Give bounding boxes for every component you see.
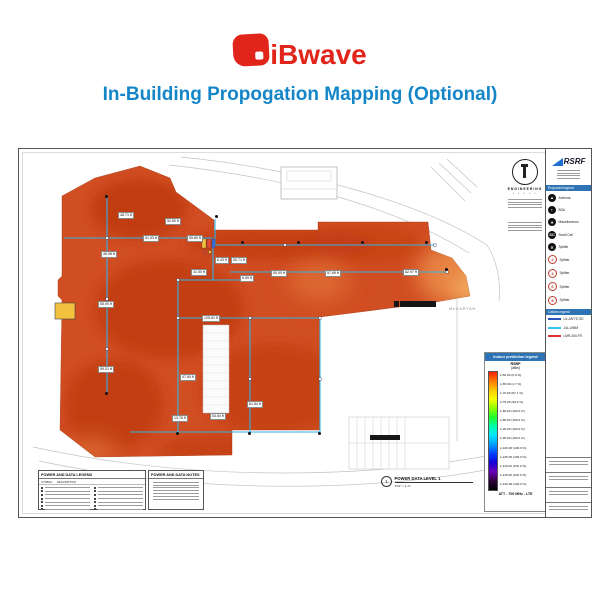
antenna-icon (105, 195, 108, 198)
prediction-threshold: ≥-65.00 (1.7 %) (500, 380, 526, 389)
rsrp-thresholds: ≥-60.00 (0.0 %)≥-65.00 (1.7 %)≥-70.00 (8… (500, 371, 526, 491)
titleblock-sidebar: RSRF Proposed legend ▲Antenna◗BDA✶Miscel… (545, 149, 591, 517)
antenna-icon (241, 241, 244, 244)
drawing-sheet: 48.71 ft52.80 ft51.53 ft55.80 ft46.98 ft… (18, 148, 592, 518)
antenna-icon (297, 241, 300, 244)
ibwave-logo-text: iBwave (270, 42, 367, 68)
symbol-mark (41, 501, 43, 503)
description-column-header: DESCRIPTION (57, 480, 76, 484)
symbol-mark (41, 494, 43, 496)
room-label-box-2 (370, 435, 400, 440)
legend-item-label: Small Cell (559, 233, 573, 237)
titleblock-cell (546, 502, 591, 517)
prediction-threshold: ≥-105.00 (100.0 %) (500, 453, 526, 462)
cable-row: J/A-10MM (546, 323, 591, 331)
text-line (508, 199, 542, 200)
callout-title: POWER DATA LEVEL 1 (395, 476, 473, 483)
legend-item: 2Splitter (546, 253, 591, 266)
bolt-body (523, 167, 526, 178)
legend-item-label: Antenna (559, 196, 571, 200)
text-line (549, 506, 588, 507)
prediction-threshold: ≥-115.00 (100.0 %) (500, 471, 526, 480)
symbol-mark (41, 505, 43, 507)
page: { "header": { "brand": "iBwave", "title"… (0, 0, 600, 600)
measurement-label: 59.01 ft (98, 366, 114, 373)
cable-label: LMR-400-FR (564, 334, 582, 338)
legend-item-label: Splitter (560, 298, 570, 302)
stamp-bolt-icon (512, 159, 538, 185)
rsrp-color-scale (488, 371, 498, 491)
measurement-label: 51.53 ft (143, 235, 159, 242)
prediction-legend-footer: ATT - 700 MHz - LTE (485, 492, 546, 496)
rsrf-logo: RSRF (546, 149, 591, 166)
miscellaneous-icon: ✶ (548, 218, 556, 226)
text-line (153, 487, 199, 488)
symbol-mark (41, 487, 43, 489)
splitter-6-icon: 6 (548, 282, 557, 291)
cable-color-swatch (548, 335, 561, 337)
text-line (98, 491, 144, 492)
measurement-label: 55.50 ft (271, 270, 287, 277)
legend-item: 8Splitter (546, 293, 591, 306)
cable-color-swatch (548, 318, 561, 320)
prediction-threshold: ≥-120.00 (100.0 %) (500, 480, 526, 489)
prediction-threshold: ≥-85.00 (100.0 %) (500, 416, 526, 425)
legend-item-label: BDA (559, 208, 566, 212)
antenna-icon (318, 432, 321, 435)
text-line (549, 476, 588, 477)
prediction-threshold: ≥-110.00 (100.0 %) (500, 462, 526, 471)
text-line (549, 461, 588, 462)
symbol-mark (94, 508, 96, 510)
text-line (45, 502, 91, 503)
drawing-callout: 1 POWER DATA LEVEL 1 3/32" = 1'-0" (381, 476, 473, 488)
prediction-threshold: ≥-100.00 (100.0 %) (500, 444, 526, 453)
power-data-notes-box: POWER AND DATA NOTES (148, 470, 204, 510)
antenna-icon: ▲ (548, 194, 556, 202)
callout-scale: 3/32" = 1'-0" (395, 484, 473, 488)
splitter-2-icon: 2 (548, 255, 557, 264)
legend-item: ✶Miscellaneous (546, 216, 591, 228)
prediction-threshold: ≥-95.00 (100.0 %) (500, 434, 526, 443)
text-line (508, 230, 542, 231)
text-line (45, 491, 91, 492)
prediction-threshold: ≥-75.00 (99.9 %) (500, 398, 526, 407)
text-line (508, 207, 542, 208)
symbol-mark (41, 498, 43, 500)
text-line (98, 509, 144, 510)
legend-item-label: Miscellaneous (559, 220, 579, 224)
text-line (98, 505, 144, 506)
measurement-label: 57.89 ft (325, 270, 341, 277)
splitter-icon: ✕ (548, 243, 556, 251)
callout-number: 1 (381, 476, 392, 487)
titleblock-cell (546, 472, 591, 487)
prediction-threshold: ≥-60.00 (0.0 %) (500, 371, 526, 380)
cables-legend-rows: UL-ANT'S ODJ/A-10MMLMR-400-FR (546, 315, 591, 340)
text-line (508, 202, 542, 203)
room-label-marker (394, 301, 399, 307)
text-line (508, 225, 542, 226)
legend-item: ✕Splitter (546, 241, 591, 253)
legend-item: 6Splitter (546, 280, 591, 293)
prediction-threshold: ≥-70.00 (87.1 %) (500, 389, 526, 398)
symbol-mark (94, 494, 96, 496)
indoor-prediction-legend: Indoor prediction legend RSRP [dBm] ≥-60… (484, 352, 547, 512)
measurement-label: 46.98 ft (101, 251, 117, 258)
text-line (98, 498, 144, 499)
text-line (153, 485, 199, 486)
text-line (45, 494, 91, 495)
text-line (153, 493, 199, 494)
power-data-notes-title: POWER AND DATA NOTES (149, 471, 203, 479)
measurement-label: 50.71 ft (231, 257, 247, 264)
measurement-label: 61.84 ft (247, 401, 263, 408)
measurement-label: 6.43 ft (215, 257, 229, 264)
text-line (549, 494, 588, 495)
text-line (98, 502, 144, 503)
text-line (549, 509, 588, 510)
measurement-label: 48.71 ft (118, 212, 134, 219)
symbol-mark (94, 487, 96, 489)
text-line (45, 505, 91, 506)
ibwave-logo-icon (232, 33, 270, 67)
text-line (45, 509, 91, 510)
text-line (508, 222, 542, 223)
measurement-label: 6.59 ft (240, 275, 254, 282)
firm-address (546, 166, 591, 183)
titleblock-cell (546, 457, 591, 472)
text-line (98, 494, 144, 495)
symbol-mark (94, 490, 96, 492)
symbol-mark (94, 498, 96, 500)
text-line (153, 496, 199, 497)
cable-color-swatch (548, 327, 561, 329)
antenna-icon (425, 241, 428, 244)
notes-lines (149, 479, 203, 502)
splitter-8-icon: 8 (548, 296, 557, 305)
legend-entries (39, 485, 145, 512)
room-label-box (400, 301, 436, 307)
power-data-legend-title: POWER AND DATA LEGEND (39, 471, 145, 479)
measurement-label: 52.80 ft (165, 218, 181, 225)
legend-entry-line (94, 508, 143, 512)
text-line (98, 487, 144, 488)
cable-row: UL-ANT'S OD (546, 315, 591, 323)
measurement-label: 55.90 ft (98, 301, 114, 308)
text-line (153, 490, 199, 491)
cable-label: J/A-10MM (564, 326, 579, 330)
titleblock-cells (546, 457, 591, 517)
text-line (153, 482, 199, 483)
street-label: McCARTAN (449, 306, 476, 311)
text-line (153, 499, 199, 500)
antenna-icon (248, 432, 251, 435)
legend-item-label: Splitter (559, 245, 569, 249)
text-line (508, 227, 542, 228)
text-line (508, 204, 542, 205)
prediction-threshold: ≥-80.00 (100.0 %) (500, 407, 526, 416)
symbol-mark (41, 490, 43, 492)
power-data-legend-box: POWER AND DATA LEGEND SYMBOL DESCRIPTION (38, 470, 146, 510)
antenna-icon (445, 268, 448, 271)
cable-row: LMR-400-FR (546, 332, 591, 340)
measurement-label: 47.80 ft (180, 374, 196, 381)
legend-item: SCSmall Cell (546, 228, 591, 240)
rsrf-chart-icon (552, 158, 563, 166)
legend-item: 4Splitter (546, 267, 591, 280)
antenna-icon (215, 215, 218, 218)
text-line (549, 464, 588, 465)
text-line (557, 173, 580, 174)
legend-item: ▲Antenna (546, 191, 591, 203)
legend-entry-line (41, 508, 90, 512)
titleblock-cell (546, 487, 591, 502)
text-line (45, 487, 91, 488)
legend-item-label: Splitter (560, 285, 570, 289)
rsrf-logo-text: RSRF (564, 158, 586, 166)
text-line (557, 175, 580, 176)
antenna-icon (361, 241, 364, 244)
measurement-label: 41.50 ft (191, 269, 207, 276)
small-cell-icon: SC (548, 231, 556, 239)
text-line (549, 479, 588, 480)
ibwave-logo: iBwave (0, 0, 600, 68)
antenna-icon (105, 392, 108, 395)
antenna-icon (176, 432, 179, 435)
symbol-mark (94, 501, 96, 503)
symbol-mark (94, 505, 96, 507)
measurement-label: 13.76 ft (172, 415, 188, 422)
prediction-threshold: ≥-90.00 (100.0 %) (500, 425, 526, 434)
bda-icon: ◗ (548, 206, 556, 214)
measurement-label: 53.84 ft (210, 413, 226, 420)
legend-item: ◗BDA (546, 204, 591, 216)
splitter-4-icon: 4 (548, 269, 557, 278)
page-title: In-Building Propogation Mapping (Optiona… (0, 84, 600, 106)
symbol-mark (41, 508, 43, 510)
prediction-legend-title: Indoor prediction legend (485, 353, 546, 361)
logo-notch (255, 51, 263, 59)
legend-item-label: Splitter (560, 258, 570, 262)
text-line (45, 498, 91, 499)
legend-item-label: Splitter (560, 271, 570, 275)
text-line (549, 491, 588, 492)
text-line (557, 170, 580, 171)
symbol-column-header: SYMBOL (41, 480, 57, 484)
measurement-label: 55.80 ft (187, 235, 203, 242)
proposed-legend-rows: ▲Antenna◗BDA✶MiscellaneousSCSmall Cell✕S… (546, 191, 591, 306)
cable-label: UL-ANT'S OD (564, 317, 584, 321)
measurement-label: 125.81 ft (202, 315, 220, 322)
text-line (557, 178, 580, 179)
measurement-label: 62.97 ft (403, 269, 419, 276)
